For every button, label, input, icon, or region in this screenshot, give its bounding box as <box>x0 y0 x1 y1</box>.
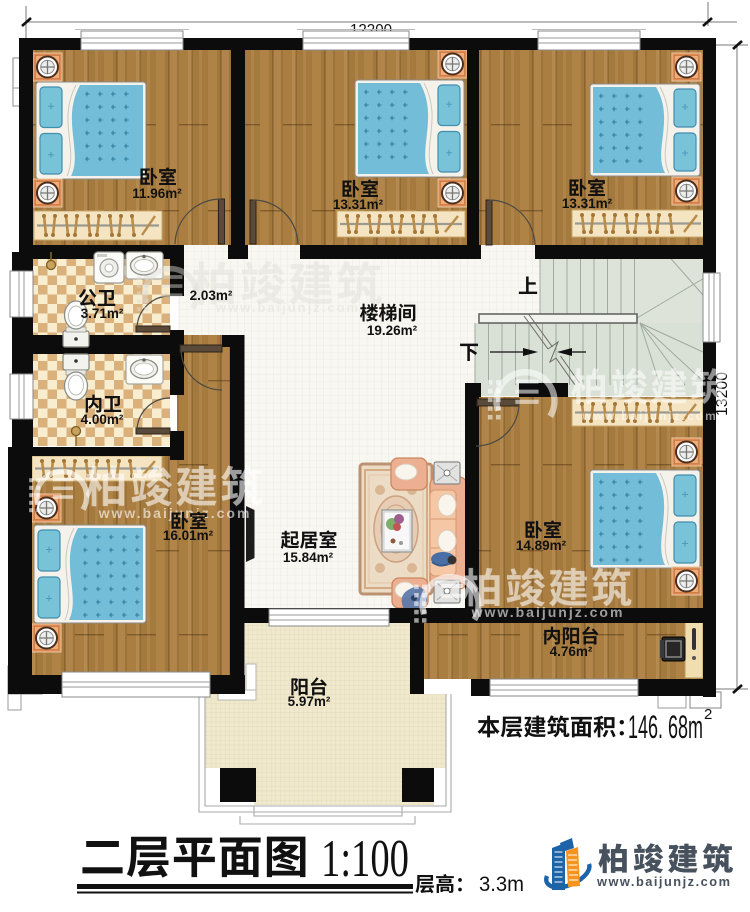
svg-text:2.03m²: 2.03m² <box>190 288 233 303</box>
svg-text:www.baijunjz.com: www.baijunjz.com <box>596 874 731 889</box>
svg-text:3.3m: 3.3m <box>479 873 524 896</box>
svg-text:15.84m²: 15.84m² <box>283 550 334 565</box>
svg-text:2: 2 <box>704 706 712 723</box>
svg-text:4.76m²: 4.76m² <box>550 644 593 659</box>
svg-text:11.96m²: 11.96m² <box>132 186 182 201</box>
svg-text:13.31m²: 13.31m² <box>562 196 613 211</box>
svg-text:19.26m²: 19.26m² <box>367 323 418 338</box>
svg-text:13.31m²: 13.31m² <box>333 197 384 212</box>
svg-text:5.97m²: 5.97m² <box>288 694 331 709</box>
svg-text:3.71m²: 3.71m² <box>81 306 124 321</box>
svg-text:1:100: 1:100 <box>321 830 409 888</box>
svg-text:146. 68m: 146. 68m <box>628 709 703 745</box>
svg-text:4.00m²: 4.00m² <box>81 412 124 427</box>
svg-text:www.baijunjz.com: www.baijunjz.com <box>471 604 625 620</box>
svg-text:14.89m²: 14.89m² <box>516 538 567 553</box>
svg-text:www.baijunjz.com: www.baijunjz.com <box>215 300 360 315</box>
svg-text:16.01m²: 16.01m² <box>163 528 214 543</box>
svg-text:www.baijunjz.com: www.baijunjz.com <box>581 409 718 423</box>
